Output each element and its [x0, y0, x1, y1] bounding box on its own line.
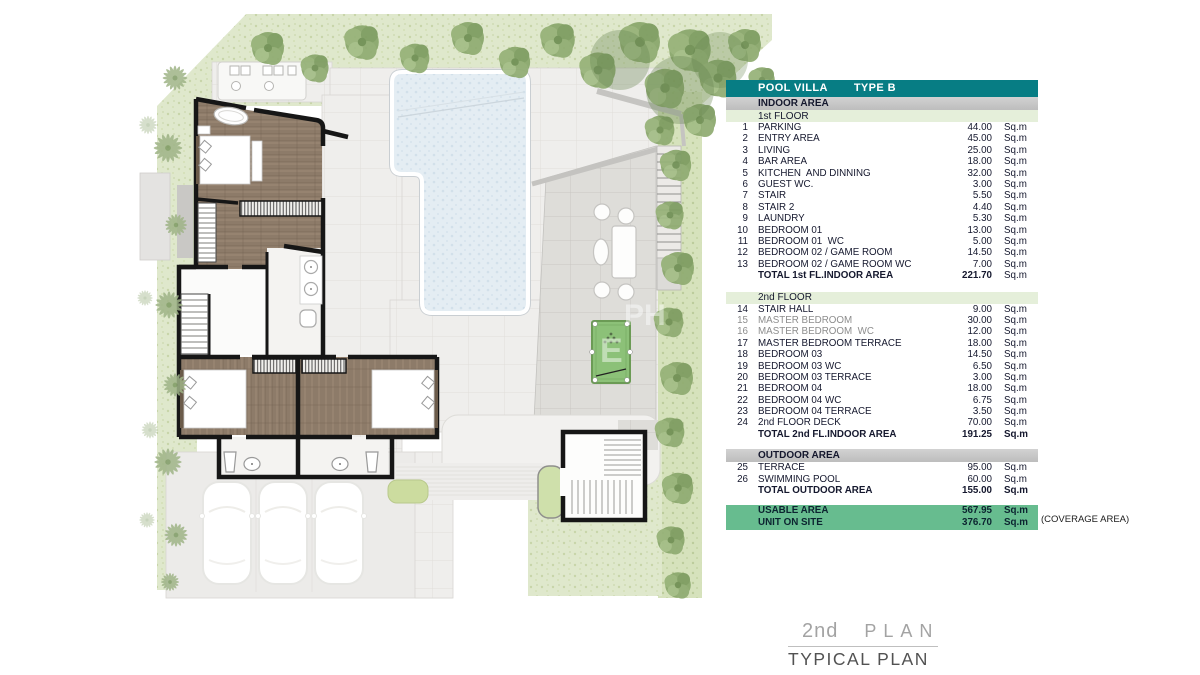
section-bar: 1st FLOOR [726, 110, 1038, 122]
table-row: 25TERRACE95.00Sq.m [726, 462, 1038, 473]
table-row: 5KITCHEN AND DINNING32.00Sq.m [726, 168, 1038, 179]
table-row: 10BEDROOM 0113.00Sq.m [726, 225, 1038, 236]
area-table-body: INDOOR AREA1st FLOOR1PARKING44.00Sq.m2EN… [726, 97, 1038, 505]
table-row: 18BEDROOM 0314.50Sq.m [726, 349, 1038, 360]
table-row: TOTAL 2nd FL.INDOOR AREA191.25Sq.m [726, 429, 1038, 442]
stair-room [560, 432, 645, 520]
table-title: POOL VILLA [758, 80, 828, 97]
section-bar: OUTDOOR AREA [726, 449, 1038, 462]
section-bar: 2nd FLOOR [726, 292, 1038, 304]
parked-cars [200, 482, 367, 584]
svg-text:E: E [600, 332, 623, 370]
table-row: 16MASTER BEDROOM WC12.00Sq.m [726, 326, 1038, 337]
plan-title-block: 2nd PLAN TYPICAL PLAN [788, 620, 938, 670]
table-row: 21BEDROOM 0418.00Sq.m [726, 383, 1038, 394]
table-row: 7STAIR5.50Sq.m [726, 190, 1038, 201]
bed-04 [372, 370, 438, 428]
table-row: 3LIVING25.00Sq.m [726, 145, 1038, 156]
table-row: TOTAL OUTDOOR AREA155.00Sq.m [726, 485, 1038, 498]
svg-text:PH: PH [624, 299, 666, 332]
table-gap [726, 283, 1038, 292]
table-row: 9LAUNDRY5.30Sq.m [726, 213, 1038, 224]
table-row: 4BAR AREA18.00Sq.m [726, 156, 1038, 167]
table-row: 8STAIR 24.40Sq.m [726, 202, 1038, 213]
table-row: 1PARKING44.00Sq.m [726, 122, 1038, 133]
table-row: 242nd FLOOR DECK70.00Sq.m [726, 417, 1038, 428]
outdoor-shower [218, 62, 306, 100]
table-row: 19BEDROOM 03 WC6.50Sq.m [726, 361, 1038, 372]
area-table: POOL VILLA TYPE B INDOOR AREA1st FLOOR1P… [726, 80, 1038, 530]
table-gap [726, 441, 1038, 449]
page: { "colors": { "table_header_teal": "#077… [0, 0, 1200, 675]
table-row: 20BEDROOM 03 TERRACE3.00Sq.m [726, 372, 1038, 383]
title-divider [788, 646, 938, 647]
side-wall-pad [140, 173, 170, 260]
planter [388, 480, 428, 503]
table-title-bar: POOL VILLA TYPE B [726, 80, 1038, 97]
table-row: 2ENTRY AREA45.00Sq.m [726, 133, 1038, 144]
coverage-note: (COVERAGE AREA) [1041, 514, 1129, 525]
table-row: 26SWIMMING POOL60.00Sq.m [726, 474, 1038, 485]
plan-label-text: PLAN [864, 621, 939, 642]
table-row: 13BEDROOM 02 / GAME ROOM WC7.00Sq.m [726, 259, 1038, 270]
table-row: USABLE AREA567.95Sq.m [726, 505, 1038, 518]
plan-floor-label: 2nd [802, 620, 838, 643]
table-row: 6GUEST WC.3.00Sq.m [726, 179, 1038, 190]
table-row: UNIT ON SITE376.70Sq.m [726, 517, 1038, 530]
plan-subtitle: TYPICAL PLAN [788, 649, 938, 670]
table-row: TOTAL 1st FL.INDOOR AREA221.70Sq.m [726, 270, 1038, 283]
table-row: 22BEDROOM 04 WC6.75Sq.m [726, 395, 1038, 406]
table-row: 23BEDROOM 04 TERRACE3.50Sq.m [726, 406, 1038, 417]
table-row: 15MASTER BEDROOM30.00Sq.m [726, 315, 1038, 326]
table-gap [726, 498, 1038, 505]
table-row: 14STAIR HALL9.00Sq.m [726, 304, 1038, 315]
table-title-type: TYPE B [854, 80, 896, 97]
summary-block: USABLE AREA567.95Sq.mUNIT ON SITE376.70S… [726, 505, 1038, 530]
table-row: 12BEDROOM 02 / GAME ROOM14.50Sq.m [726, 247, 1038, 258]
table-row: 17MASTER BEDROOM TERRACE18.00Sq.m [726, 338, 1038, 349]
table-row: 11BEDROOM 01 WC5.00Sq.m [726, 236, 1038, 247]
bed-03 [180, 370, 246, 428]
section-bar: INDOOR AREA [726, 97, 1038, 110]
